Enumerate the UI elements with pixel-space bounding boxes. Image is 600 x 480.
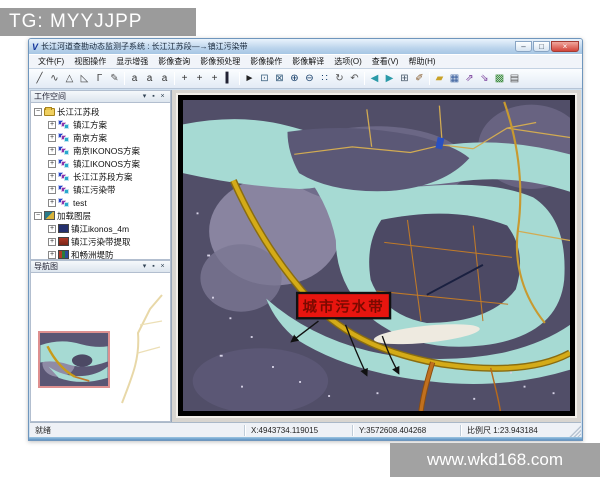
close-button[interactable]: × <box>551 41 579 52</box>
expand-icon[interactable]: + <box>48 121 56 129</box>
tree-root-project[interactable]: − 长江江苏段 <box>34 105 170 118</box>
tree-root-layers[interactable]: − 加载图层 <box>34 209 170 222</box>
expand-icon[interactable]: + <box>48 251 56 259</box>
toolbar-separator <box>429 72 430 85</box>
draw-line-tool[interactable]: ╱ <box>32 71 47 87</box>
map-viewport[interactable]: 城市污水带 <box>172 90 581 422</box>
workspace-dropdown-icon[interactable]: ▾ <box>140 92 149 101</box>
tile-windows-tool[interactable]: ⊞ <box>397 71 412 87</box>
pollution-annotation[interactable]: 城市污水带 <box>297 293 390 318</box>
workspace-close-icon[interactable]: × <box>158 92 167 101</box>
grid-points-tool[interactable]: ∷ <box>317 71 332 87</box>
menu-item-8[interactable]: 查看(V) <box>367 55 404 68</box>
workspace-tree: − 长江江苏段 +镇江方案+南京方案+南京IKONOS方案+镇江IKONOS方案… <box>31 103 170 260</box>
window-title: 长江河道查勘动态监测子系统 : 长江江苏段—→镇江污染带 <box>41 41 515 52</box>
menu-item-2[interactable]: 显示增强 <box>111 55 153 68</box>
expand-icon[interactable]: + <box>48 173 56 181</box>
menu-item-5[interactable]: 影像操作 <box>245 55 287 68</box>
tree-item-label: 南京方案 <box>73 132 107 144</box>
navigation-thumbnail[interactable] <box>38 331 110 388</box>
watermark-top-left: TG: MYYJJPP <box>0 8 196 36</box>
menu-item-7[interactable]: 选项(O) <box>329 55 367 68</box>
menu-item-9[interactable]: 帮助(H) <box>403 55 440 68</box>
tree-item-label: 镇江ikonos_4m <box>71 223 129 235</box>
navigation-roads-overlay <box>110 281 168 411</box>
expand-icon[interactable]: + <box>48 186 56 194</box>
tree-item-scheme-6[interactable]: +test <box>34 196 170 209</box>
zoom-window-tool[interactable]: ⊡ <box>257 71 272 87</box>
tree-item-label: 南京IKONOS方案 <box>73 145 140 157</box>
layer-image-icon <box>58 224 69 233</box>
tree-item-scheme-2[interactable]: +南京IKONOS方案 <box>34 144 170 157</box>
image-tool[interactable]: ▩ <box>492 71 507 87</box>
forward-arrow-tool[interactable]: ▶ <box>382 71 397 87</box>
minimize-button[interactable]: – <box>515 41 532 52</box>
layer-image-icon <box>58 250 69 259</box>
main-content: 工作空间 ▾ ▪ × − 长江江苏段 +镇江方案+南京方案+南京IKONOS方案… <box>30 90 581 422</box>
pollution-annotation-text: 城市污水带 <box>303 298 385 316</box>
collapse-icon[interactable]: − <box>34 108 42 116</box>
expand-icon[interactable]: + <box>48 199 56 207</box>
tree-item-scheme-4[interactable]: +长江江苏段方案 <box>34 170 170 183</box>
toolbar-separator <box>174 72 175 85</box>
collapse-icon[interactable]: − <box>34 212 42 220</box>
expand-icon[interactable]: + <box>48 147 56 155</box>
expand-icon[interactable]: + <box>48 160 56 168</box>
point-label-tool[interactable]: + <box>207 71 222 87</box>
satellite-image[interactable]: 城市污水带 <box>183 100 570 411</box>
toolbar-separator <box>364 72 365 85</box>
navigation-close-icon[interactable]: × <box>158 262 167 271</box>
tree-item-layer-1[interactable]: +镇江污染带提取 <box>34 235 170 248</box>
navigation-panel: 导航图 ▾ ▪ × <box>30 260 171 422</box>
scheme-icon <box>58 159 71 169</box>
label-medium-tool[interactable]: a <box>142 71 157 87</box>
status-ready-text: 就绪 <box>30 425 244 436</box>
tree-item-label: 长江江苏段方案 <box>73 171 133 183</box>
workspace-panel-title: 工作空间 <box>34 91 140 102</box>
point-tool[interactable]: + <box>177 71 192 87</box>
toolbar-separator <box>239 72 240 85</box>
watermark-bottom-right: www.wkd168.com <box>390 443 600 477</box>
pan-tool[interactable]: ↻ <box>332 71 347 87</box>
undo-tool[interactable]: ↶ <box>347 71 362 87</box>
label-small-tool[interactable]: a <box>127 71 142 87</box>
status-scale: 比例尺 1:23.943184 <box>460 425 568 436</box>
menu-item-6[interactable]: 影像解译 <box>287 55 329 68</box>
select-pointer-tool[interactable]: ► <box>242 71 257 87</box>
tree-layers-label: 加载图层 <box>57 210 91 222</box>
save-tool[interactable]: ▦ <box>447 71 462 87</box>
draw-triangle-tool[interactable]: ◺ <box>77 71 92 87</box>
tree-item-label: 镇江污染带提取 <box>71 236 131 248</box>
folder-icon <box>44 108 55 116</box>
navigation-dropdown-icon[interactable]: ▾ <box>140 262 149 271</box>
zoom-in-tool[interactable]: ⊕ <box>287 71 302 87</box>
image-frame: 城市污水带 <box>178 95 575 416</box>
application-window: V 长江河道查勘动态监测子系统 : 长江江苏段—→镇江污染带 – □ × 文件(… <box>28 38 583 441</box>
sidebar: 工作空间 ▾ ▪ × − 长江江苏段 +镇江方案+南京方案+南京IKONOS方案… <box>30 90 172 422</box>
export-tool[interactable]: ⇗ <box>462 71 477 87</box>
expand-icon[interactable]: + <box>48 238 56 246</box>
menu-bar: 文件(F)视图操作显示增强影像查询影像预处理影像操作影像解译选项(O)查看(V)… <box>29 54 582 69</box>
app-logo-icon: V <box>32 42 38 52</box>
menu-item-4[interactable]: 影像预处理 <box>195 55 245 68</box>
tree-item-label: 镇江IKONOS方案 <box>73 158 140 170</box>
brush-tool[interactable]: ✐ <box>412 71 427 87</box>
image-margin: 城市污水带 <box>176 93 577 418</box>
status-x-coordinate: X:4943734.119015 <box>244 425 352 436</box>
menu-item-1[interactable]: 视图操作 <box>69 55 111 68</box>
navigation-pin-icon[interactable]: ▪ <box>149 262 158 271</box>
open-folder-tool[interactable]: ▰ <box>432 71 447 87</box>
expand-icon[interactable]: + <box>48 134 56 142</box>
layer-image-icon <box>58 237 69 246</box>
status-bar: 就绪 X:4943734.119015 Y:3572608.404268 比例尺… <box>30 422 581 437</box>
pencil-tool[interactable]: ✎ <box>107 71 122 87</box>
navigation-panel-header: 导航图 ▾ ▪ × <box>30 260 171 273</box>
scheme-icon <box>58 146 71 156</box>
scheme-icon <box>58 198 71 208</box>
menu-item-3[interactable]: 影像查询 <box>153 55 195 68</box>
scheme-icon <box>58 172 71 182</box>
layers-icon <box>44 211 55 220</box>
scheme-icon <box>58 185 71 195</box>
tree-root-label: 长江江苏段 <box>57 106 100 118</box>
label-large-tool[interactable]: a <box>157 71 172 87</box>
maximize-button[interactable]: □ <box>533 41 550 52</box>
resize-grip[interactable] <box>568 424 581 437</box>
tree-item-scheme-3[interactable]: +镇江IKONOS方案 <box>34 157 170 170</box>
zoom-out-tool[interactable]: ⊖ <box>302 71 317 87</box>
toolbar: ╱∿△◺Γ✎aaa+++▍►⊡⊠⊕⊖∷↻↶◀▶⊞✐▰▦⇗⇘▩▤ <box>29 69 582 89</box>
import-tool[interactable]: ⇘ <box>477 71 492 87</box>
bar-tool[interactable]: ▍ <box>222 71 237 87</box>
tree-item-label: 镇江污染带 <box>73 184 116 196</box>
tree-item-label: 和畅洲堤防 <box>71 249 114 261</box>
tree-item-layer-0[interactable]: +镇江ikonos_4m <box>34 222 170 235</box>
scheme-icon <box>58 133 71 143</box>
tree-item-label: 镇江方案 <box>73 119 107 131</box>
workspace-panel-header: 工作空间 ▾ ▪ × <box>30 90 171 103</box>
expand-icon[interactable]: + <box>48 225 56 233</box>
tree-item-label: test <box>73 198 87 208</box>
tree-item-scheme-5[interactable]: +镇江污染带 <box>34 183 170 196</box>
draw-angle-tool[interactable]: Γ <box>92 71 107 87</box>
tree-item-layer-2[interactable]: +和畅洲堤防 <box>34 248 170 260</box>
full-extent-tool[interactable]: ⊠ <box>272 71 287 87</box>
multipoint-tool[interactable]: + <box>192 71 207 87</box>
toolbar-separator <box>124 72 125 85</box>
tree-item-scheme-1[interactable]: +南京方案 <box>34 131 170 144</box>
workspace-panel-body: − 长江江苏段 +镇江方案+南京方案+南京IKONOS方案+镇江IKONOS方案… <box>30 103 171 260</box>
navigation-panel-title: 导航图 <box>34 261 140 272</box>
title-bar: V 长江河道查勘动态监测子系统 : 长江江苏段—→镇江污染带 – □ × <box>29 39 582 54</box>
navigation-panel-body <box>30 273 171 422</box>
draw-curve-tool[interactable]: ∿ <box>47 71 62 87</box>
menu-item-0[interactable]: 文件(F) <box>33 55 69 68</box>
scheme-icon <box>58 120 71 130</box>
status-y-coordinate: Y:3572608.404268 <box>352 425 460 436</box>
print-tool[interactable]: ▤ <box>507 71 522 87</box>
tree-item-scheme-0[interactable]: +镇江方案 <box>34 118 170 131</box>
workspace-panel: 工作空间 ▾ ▪ × − 长江江苏段 +镇江方案+南京方案+南京IKONOS方案… <box>30 90 171 260</box>
draw-polygon-tool[interactable]: △ <box>62 71 77 87</box>
workspace-pin-icon[interactable]: ▪ <box>149 92 158 101</box>
back-arrow-tool[interactable]: ◀ <box>367 71 382 87</box>
